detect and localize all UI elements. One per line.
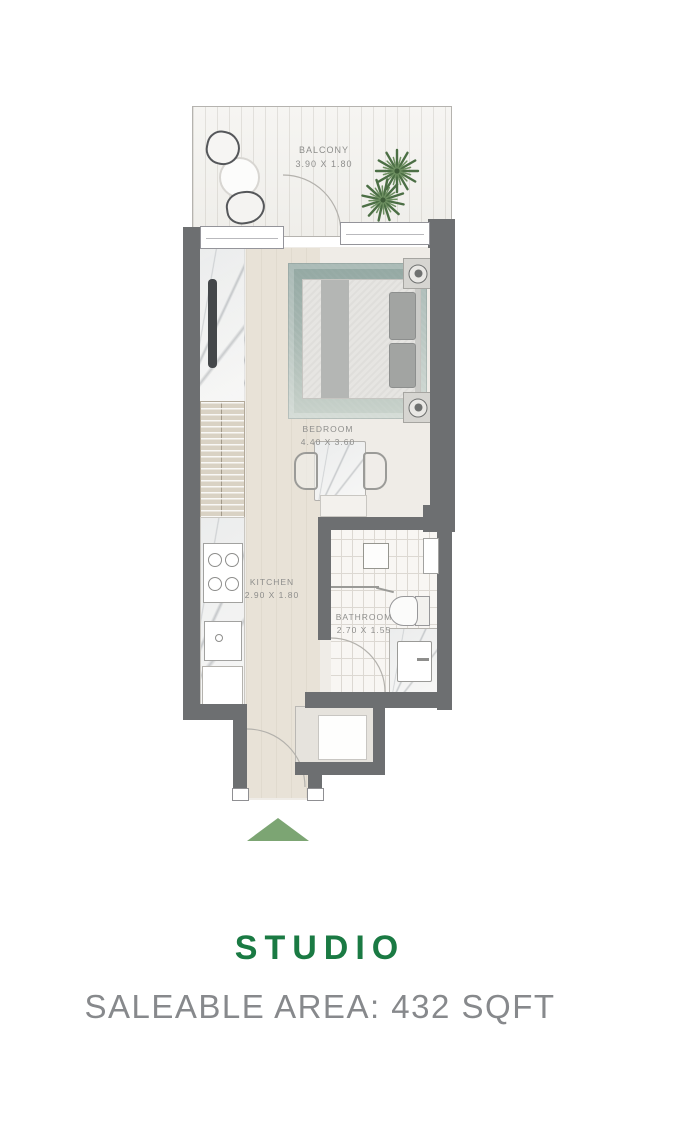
wall-right-bedroom bbox=[430, 245, 455, 507]
plan-subtitle: SALEABLE AREA: 432 SQFT bbox=[0, 988, 640, 1026]
entry-jamb-cap bbox=[232, 788, 249, 801]
kitchen-label: KITCHEN 2.90 X 1.80 bbox=[222, 576, 322, 602]
balcony-label: BALCONY 3.90 X 1.80 bbox=[274, 144, 374, 172]
bed bbox=[302, 279, 421, 399]
console-bench bbox=[320, 495, 367, 517]
pillow bbox=[389, 343, 416, 388]
wall-left bbox=[183, 247, 200, 720]
room-name: BALCONY bbox=[274, 144, 374, 158]
kitchen-cabinet bbox=[202, 666, 243, 705]
room-dims: 2.70 X 1.55 bbox=[314, 624, 414, 637]
bathroom-label: BATHROOM 2.70 X 1.55 bbox=[314, 611, 414, 637]
room-dims: 4.40 X 3.60 bbox=[278, 436, 378, 449]
wardrobe bbox=[200, 401, 245, 519]
bed-throw-blanket bbox=[321, 280, 349, 398]
room-dims: 3.90 X 1.80 bbox=[274, 158, 374, 172]
bedroom-label: BEDROOM 4.40 X 3.60 bbox=[278, 423, 378, 449]
pillow bbox=[389, 292, 416, 340]
stove-burner-icon bbox=[208, 553, 222, 567]
wall-bath-top bbox=[318, 517, 437, 530]
nightstand bbox=[403, 392, 433, 423]
nightstand bbox=[403, 258, 433, 289]
floorplan-page: { "colors": { "wall": "#6d6f71", "floor"… bbox=[0, 0, 675, 1148]
tv-unit bbox=[208, 279, 217, 368]
shower-head bbox=[363, 543, 389, 569]
kitchen-sink bbox=[204, 621, 242, 661]
wall-niche bbox=[423, 538, 439, 574]
lamp-icon bbox=[409, 398, 428, 417]
vanity-sink bbox=[397, 641, 432, 682]
entry-jamb-cap bbox=[307, 788, 324, 801]
room-name: BATHROOM bbox=[314, 611, 414, 624]
stove-burner-icon bbox=[225, 553, 239, 567]
wall-post-right bbox=[428, 219, 455, 248]
window-left bbox=[200, 226, 284, 249]
marble-feature-wall bbox=[200, 247, 245, 401]
entrance-arrow-icon bbox=[247, 818, 309, 841]
utility-closet-inner bbox=[318, 715, 367, 760]
stove-burner-icon bbox=[208, 577, 222, 591]
room-name: KITCHEN bbox=[222, 576, 322, 589]
wall-hall-left bbox=[233, 718, 247, 790]
plan-title: STUDIO bbox=[0, 929, 640, 968]
wall-closet-bottom bbox=[295, 762, 385, 775]
window-right bbox=[340, 222, 430, 245]
lamp-icon bbox=[409, 264, 428, 283]
shower-partition bbox=[331, 586, 379, 588]
dining-chair bbox=[294, 452, 318, 490]
faucet-icon bbox=[417, 658, 429, 661]
faucet-icon bbox=[215, 634, 223, 642]
dining-table bbox=[314, 441, 366, 501]
vanity-counter bbox=[389, 628, 439, 694]
room-name: BEDROOM bbox=[278, 423, 378, 436]
room-dims: 2.90 X 1.80 bbox=[222, 589, 322, 602]
dining-chair bbox=[363, 452, 387, 490]
wall-bath-right bbox=[437, 530, 452, 710]
